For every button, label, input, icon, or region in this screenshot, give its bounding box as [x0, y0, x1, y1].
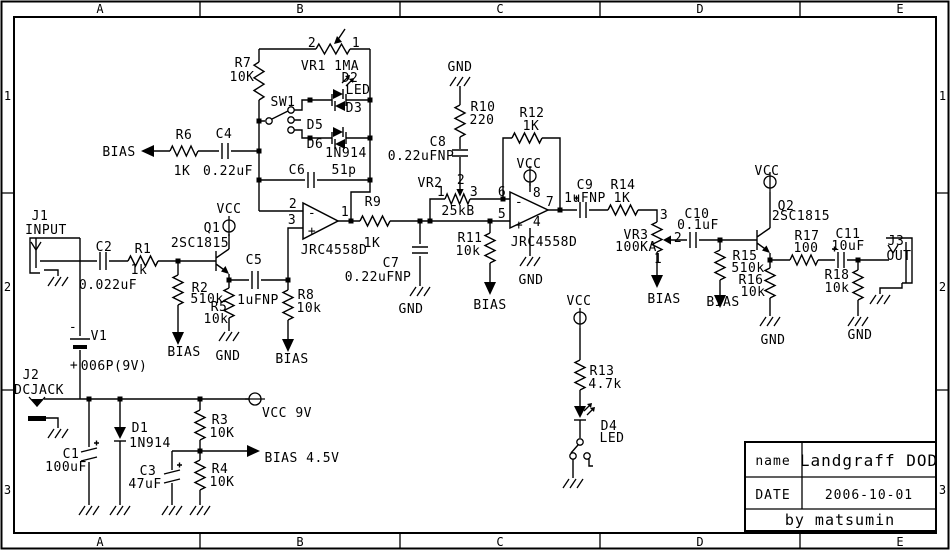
label-r6-name: R6 [176, 128, 193, 143]
label-d3-name: D3 [346, 101, 363, 116]
ground-d1 [110, 506, 130, 515]
label-bias-vr3: BIAS [647, 292, 680, 307]
screenshot-root: ABCDEABCDE112233 [0, 0, 950, 550]
diode-D1 [114, 427, 126, 441]
label-vr1-pin1: 1 [352, 36, 360, 51]
switch-SW1 [266, 107, 294, 133]
label-c5-val: 1uFNP [237, 293, 279, 308]
frame-letter-bottom-D: D [696, 535, 703, 549]
bias-arrow-r2 [172, 332, 184, 345]
capacitor-C8 [452, 150, 468, 156]
label-bias-r15: BIAS [706, 295, 739, 310]
capacitor-C1 [81, 441, 99, 462]
bias-arrow-r11 [484, 282, 496, 295]
frame-letter-top-A: A [96, 2, 104, 16]
vr1-wiper-arrow [334, 36, 342, 44]
label-q2-type: 2SC1815 [772, 209, 830, 224]
label-c6-name: C6 [289, 163, 306, 178]
label-op1-type: JRC4558D [301, 243, 368, 258]
frame-number-right-1: 1 [939, 89, 946, 103]
label-vr3-pin2: 2 [674, 231, 682, 246]
title-block-name-label: name [755, 454, 790, 469]
label-c9-val: 1uFNP [564, 191, 606, 206]
label-c11-val: 10uF [831, 239, 864, 254]
label-c2-val: 0.022uF [79, 278, 137, 293]
ground-j2 [48, 429, 68, 438]
label-c2-name: C2 [96, 240, 113, 255]
vr3-wiper-arrow [663, 236, 671, 245]
bias-arrow-r8 [282, 339, 294, 352]
label-op2-pin4: 4 [533, 215, 541, 230]
title-block-name-value: Landgraff DOD [800, 451, 938, 470]
label-c1-val: 100uF [45, 460, 87, 475]
label-r9-name: R9 [365, 195, 382, 210]
frame-number-right-2: 2 [939, 280, 946, 294]
label-r10-val: 220 [470, 113, 495, 128]
label-d1-type: 1N914 [129, 436, 171, 451]
label-j2-name: J2 [23, 368, 40, 383]
potentiometer-VR2 [445, 194, 470, 204]
label-sw1-name: SW1 [271, 95, 296, 110]
label-v1-type: 006P(9V) [81, 359, 148, 374]
label-q1-name: Q1 [204, 221, 221, 236]
label-c4-name: C4 [216, 127, 233, 142]
capacitor-C5 [252, 271, 258, 289]
ground-r18 [848, 317, 868, 326]
ground-r10 [450, 77, 470, 86]
ground-op2 [520, 257, 540, 266]
label-r8-val: 10k [297, 301, 322, 316]
frame-letter-top-E: E [896, 2, 903, 16]
resistor-R15 [715, 250, 725, 280]
label-c4-val: 0.22uF [203, 164, 253, 179]
label-r7-val: 10K [230, 70, 255, 85]
label-r16-val: 10k [741, 285, 766, 300]
ground-footswitch [563, 479, 583, 488]
label-c10-val: 0.1uF [677, 218, 719, 233]
label-r5-val: 10k [204, 312, 229, 327]
jack-J2-dc [28, 397, 46, 421]
label-op1-minus: - [308, 206, 316, 221]
label-bias-r8: BIAS [275, 352, 308, 367]
label-j3-label: OUT [887, 249, 912, 264]
resistor-R7 [254, 62, 264, 100]
frame-number-left-3: 3 [4, 483, 11, 497]
resistor-R18 [853, 270, 863, 300]
label-led-vcc: VCC [567, 294, 592, 309]
ground-c3 [162, 506, 182, 515]
capacitor-C4 [222, 143, 228, 159]
resistor-R9 [360, 216, 390, 226]
ground-r4 [190, 506, 210, 515]
resistor-R13 [575, 360, 585, 390]
label-op2-type: JRC4558D [511, 235, 578, 250]
potentiometer-VR1 [316, 44, 350, 54]
label-vr2-pin2: 2 [457, 173, 465, 188]
label-q1-type: 2SC1815 [171, 236, 229, 251]
label-v1-minus: - [69, 320, 77, 335]
label-c8-name: C8 [430, 135, 447, 150]
frame-number-left-1: 1 [4, 89, 11, 103]
label-vr2-pin1: 1 [437, 185, 445, 200]
label-j2-label: DCJACK [14, 383, 64, 398]
ground-r5 [219, 332, 239, 341]
wires-feedback-loop [154, 29, 370, 221]
label-c7-name: C7 [383, 256, 400, 271]
label-op1-pin3: 3 [288, 213, 296, 228]
label-q2-vcc: VCC [755, 164, 780, 179]
resistor-R17 [790, 255, 818, 265]
transistor-Q2 [757, 228, 770, 253]
label-gnd-r18: GND [848, 328, 873, 343]
label-r7-name: R7 [235, 56, 252, 71]
resistor-R10 [455, 105, 465, 137]
resistor-R12 [512, 133, 542, 143]
label-r3-val: 10K [210, 426, 235, 441]
label-c6-val: 51p [332, 163, 357, 178]
label-r6-val: 1K [174, 164, 191, 179]
label-op1-plus: + [308, 224, 316, 239]
frame-number-left-2: 2 [4, 280, 11, 294]
label-op2-plus: + [515, 218, 523, 233]
label-c8-val: 0.22uFNP [388, 149, 455, 164]
ground-j1 [48, 277, 68, 286]
label-d56-type: 1N914 [325, 146, 367, 161]
switch-footswitch [570, 439, 590, 459]
label-bias-r6: BIAS [102, 145, 135, 160]
frame-letter-top-D: D [696, 2, 703, 16]
resistor-R11 [485, 233, 495, 263]
schematic-labels: 21VR1 1MAR710KSW1D2LEDD3D5D61N914C651pBI… [14, 36, 911, 492]
label-c3-val: 47uF [128, 477, 161, 492]
vcc-symbol-9v [245, 393, 265, 405]
label-v1-name: V1 [91, 329, 108, 344]
label-op1-pin1: 1 [341, 205, 349, 220]
label-op2-pin5: 5 [498, 207, 506, 222]
frame-letter-top-C: C [496, 2, 503, 16]
label-vcc-9v: VCC 9V [262, 406, 312, 421]
resistor-R14 [608, 205, 638, 215]
label-bias-r11: BIAS [473, 298, 506, 313]
label-d5-name: D5 [307, 118, 324, 133]
ground-r16 [760, 317, 780, 326]
capacitor-C10 [690, 232, 696, 248]
label-vr2-val: 25kB [441, 204, 474, 219]
bias-arrow-r6 [141, 145, 154, 157]
label-op2-vcc: VCC [517, 157, 542, 172]
label-vr3-val: 100KA [615, 240, 657, 255]
label-r14-val: 1K [614, 191, 631, 206]
label-gnd-r10: GND [448, 60, 473, 75]
label-r18-val: 10k [825, 281, 850, 296]
resistor-R4 [195, 460, 205, 490]
frame-letter-bottom-A: A [96, 535, 104, 549]
capacitor-C7 [412, 247, 428, 253]
label-r9-val: 1K [364, 236, 381, 251]
label-d4-type: LED [600, 431, 625, 446]
label-j1-label: INPUT [25, 223, 67, 238]
label-vr2-pin3: 3 [470, 185, 478, 200]
bias-arrow-45v [247, 445, 260, 457]
label-j1-name: J1 [32, 209, 49, 224]
label-gnd-c7: GND [399, 302, 424, 317]
ground-c1 [79, 506, 99, 515]
label-d2-type: LED [346, 83, 371, 98]
label-r1-name: R1 [135, 242, 152, 257]
label-gnd-r16: GND [761, 333, 786, 348]
vcc-symbol-led [574, 308, 586, 328]
frame-letter-top-B: B [296, 2, 303, 16]
schematic-canvas: ABCDEABCDE112233 [0, 0, 950, 550]
label-op2-pin8: 8 [533, 186, 541, 201]
transistor-Q1 [216, 249, 229, 274]
title-block-date-label: DATE [755, 488, 790, 503]
label-vr1-pin2: 2 [308, 36, 316, 51]
capacitor-C6 [308, 172, 314, 188]
label-d1-name: D1 [132, 421, 149, 436]
label-bias-r2: BIAS [167, 345, 200, 360]
label-op2-pin6: 6 [498, 185, 506, 200]
label-q1-vcc: VCC [217, 202, 242, 217]
resistor-R6 [170, 146, 198, 156]
vcc-symbol-q1 [223, 216, 235, 236]
title-block: name Landgraff DOD DATE 2006-10-01 by ma… [745, 442, 938, 531]
resistor-R2 [173, 275, 183, 305]
bias-arrow-vr3 [651, 275, 663, 288]
battery-V1 [70, 339, 90, 347]
label-vr3-pin3: 3 [660, 208, 668, 223]
label-bias-45: BIAS 4.5V [265, 451, 340, 466]
frame-number-right-3: 3 [939, 483, 946, 497]
label-vr3-pin1: 1 [654, 252, 662, 267]
label-r13-val: 4.7k [588, 377, 621, 392]
label-gnd-op2: GND [519, 273, 544, 288]
frame-letter-bottom-B: B [296, 535, 303, 549]
capacitor-C3 [164, 463, 182, 484]
label-op2-minus: - [515, 195, 523, 210]
title-block-date-value: 2006-10-01 [825, 488, 913, 503]
frame-letter-bottom-E: E [896, 535, 903, 549]
label-gnd-r5: GND [216, 349, 241, 364]
label-j3-name: J3 [888, 234, 905, 249]
resistor-R16 [765, 268, 775, 298]
resistor-R3 [195, 410, 205, 440]
led-D4 [574, 403, 595, 420]
resistor-R8 [283, 290, 293, 320]
label-r4-val: 10K [210, 475, 235, 490]
label-d6-name: D6 [307, 137, 324, 152]
label-c7-val: 0.22uFNP [345, 270, 412, 285]
label-r17-val: 100 [794, 241, 819, 256]
ground-j3 [870, 295, 890, 304]
label-v1-plus: + [70, 358, 78, 373]
title-block-credit: by matsumin [785, 511, 895, 529]
label-r12-val: 1K [523, 119, 540, 134]
frame-letter-bottom-C: C [496, 535, 503, 549]
label-op2-pin7: 7 [546, 195, 554, 210]
label-op1-pin2: 2 [289, 197, 297, 212]
ground-c7 [410, 287, 430, 296]
label-r11-val: 10k [456, 244, 481, 259]
jack-J1-input [30, 238, 44, 273]
label-c5-name: C5 [246, 253, 263, 268]
label-r1-val: 1k [131, 263, 148, 278]
